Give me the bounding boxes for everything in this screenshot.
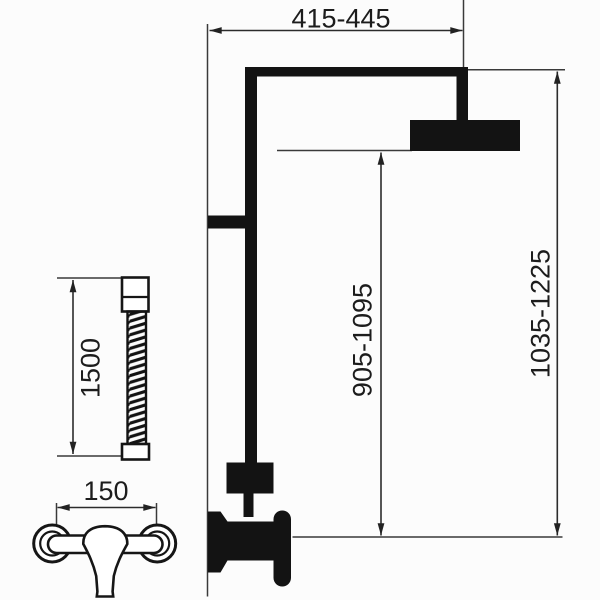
hose-bottom-fitting [122, 444, 149, 460]
dim-label-mixer-spacing: 150 [83, 476, 128, 506]
overhead-shower-head [410, 120, 520, 151]
dim-label-head-height: 905-1095 [348, 283, 378, 397]
dim-label-hose-length: 1500 [76, 338, 106, 398]
riser-stem [244, 493, 254, 517]
hose-top-fitting [122, 278, 149, 312]
hose-flexible-tube [128, 312, 147, 445]
drawing-background [0, 0, 600, 600]
wall-bracket [208, 216, 257, 229]
shower-spec-diagram: 415-445 1035-1225 905-1095 1500 150 [0, 0, 600, 600]
diverter-block [227, 463, 274, 494]
dim-label-top-width: 415-445 [291, 4, 390, 34]
mixer-handle-side-view [274, 511, 292, 587]
dim-label-total-height: 1035-1225 [526, 249, 556, 378]
